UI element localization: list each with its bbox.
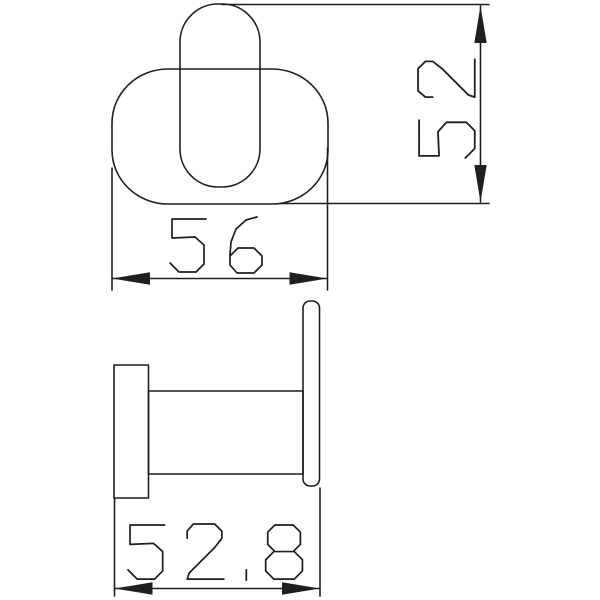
dimension-depth: [115, 488, 321, 596]
arrowhead-left-icon: [112, 272, 150, 284]
arrowhead-right-icon: [282, 582, 320, 594]
drawing-lines: [112, 4, 489, 596]
arrowhead-left-icon: [115, 582, 153, 594]
spool-outline: [149, 391, 304, 474]
arrowhead-up-icon: [474, 6, 486, 43]
arrowhead-down-icon: [474, 165, 486, 202]
hook-stem-outline: [180, 4, 260, 187]
dimension-height: [222, 5, 489, 204]
flange-outline: [114, 365, 149, 498]
side-view: [114, 301, 320, 498]
oval-base-outline: [112, 69, 328, 204]
technical-drawing: [0, 0, 600, 600]
top-view: [112, 4, 328, 204]
dimension-width: [112, 148, 328, 290]
dimension-label-depth: [128, 524, 302, 580]
arrowhead-right-icon: [290, 272, 328, 284]
dimension-label-height: [418, 59, 475, 158]
drawing-canvas: [0, 0, 600, 600]
dimension-label-width: [170, 217, 262, 273]
wall-plate-outline: [303, 301, 320, 486]
